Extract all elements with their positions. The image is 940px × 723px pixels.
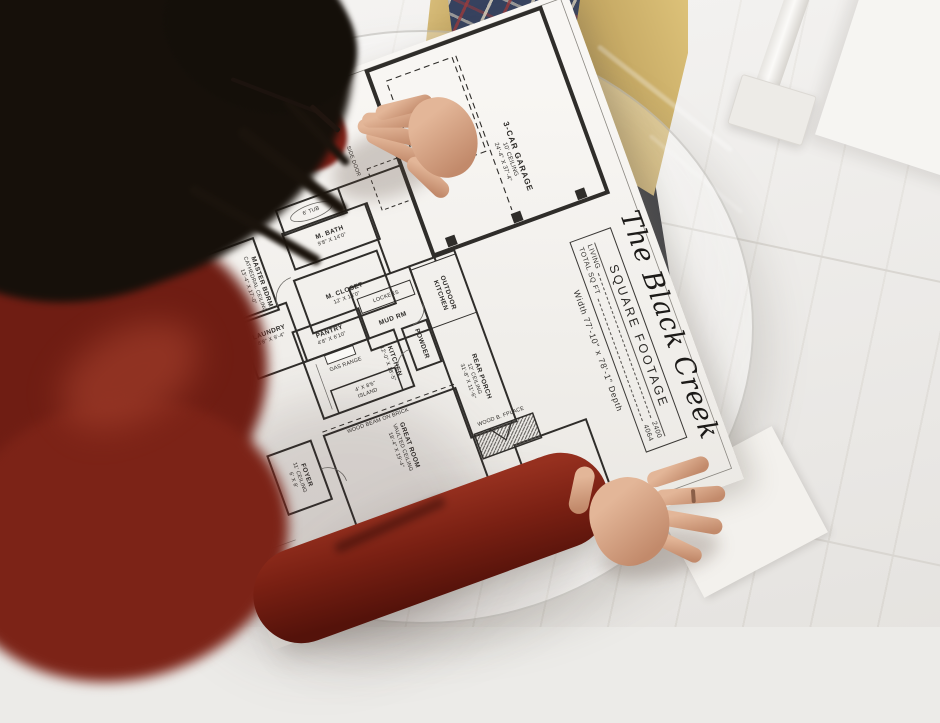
index-finger <box>645 454 711 489</box>
pointing-hand <box>341 65 504 215</box>
finger-ring <box>691 489 696 503</box>
photo-canvas: { "blueprint": { "plan_title": "The Blac… <box>0 0 940 627</box>
